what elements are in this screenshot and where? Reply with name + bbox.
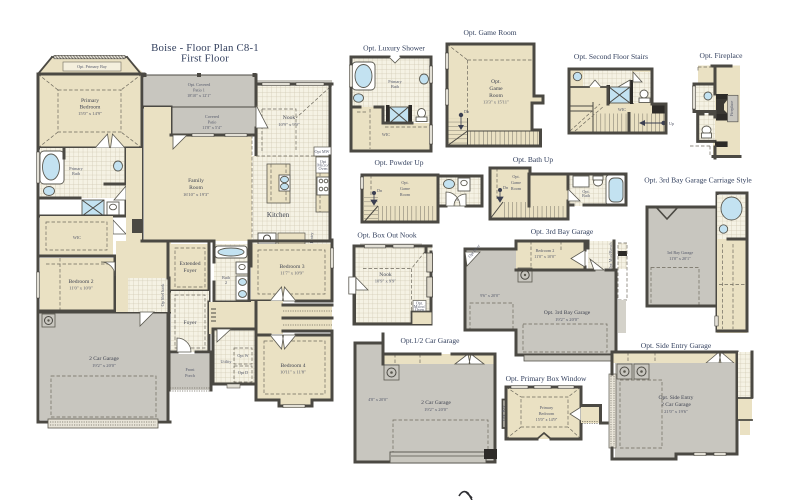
svg-text:Opt.: Opt. [512, 174, 519, 179]
svg-text:Room: Room [489, 93, 503, 99]
svg-text:Bath: Bath [72, 171, 81, 176]
svg-text:Opt. Primary Bay: Opt. Primary Bay [77, 64, 108, 69]
svg-text:Bath: Bath [391, 84, 400, 89]
svg-text:Bedroom 2: Bedroom 2 [68, 279, 93, 285]
svg-text:Up: Up [669, 121, 674, 126]
svg-text:Opt. Fireplace: Opt. Fireplace [700, 51, 744, 60]
svg-text:WIC: WIC [382, 132, 390, 137]
svg-text:Dn: Dn [377, 188, 383, 193]
svg-text:Bath: Bath [582, 193, 591, 198]
svg-text:Opt. Primary Box Window: Opt. Primary Box Window [506, 374, 587, 383]
svg-text:Bedroom 2: Bedroom 2 [536, 248, 555, 253]
svg-text:3rd Bay Garage: 3rd Bay Garage [667, 250, 694, 255]
svg-text:Bedroom: Bedroom [80, 105, 101, 111]
svg-text:Patio: Patio [208, 120, 217, 125]
svg-text:Covered: Covered [205, 114, 220, 119]
svg-text:Bedroom: Bedroom [539, 411, 555, 416]
svg-text:First Floor: First Floor [181, 53, 229, 65]
svg-text:Extended: Extended [179, 261, 200, 267]
svg-text:2 Car Garage: 2 Car Garage [661, 402, 691, 408]
svg-text:18'10" x 12'1": 18'10" x 12'1" [187, 93, 211, 98]
svg-text:Dn: Dn [503, 185, 509, 190]
svg-text:Opt. Powder Up: Opt. Powder Up [375, 158, 424, 167]
svg-text:Room: Room [511, 186, 522, 191]
svg-text:Opt W: Opt W [237, 353, 248, 358]
svg-text:13'3" x 15'11": 13'3" x 15'11" [483, 100, 509, 105]
svg-text:11'8" x 5'4": 11'8" x 5'4" [202, 125, 222, 130]
svg-text:Front: Front [185, 367, 195, 372]
svg-text:Bedroom 3: Bedroom 3 [279, 264, 304, 270]
svg-text:Opt. Game Room: Opt. Game Room [463, 28, 516, 37]
svg-text:9'6" x 20'0": 9'6" x 20'0" [480, 293, 500, 298]
svg-text:11'0" x 20'1": 11'0" x 20'1" [669, 256, 691, 261]
svg-text:Foyer: Foyer [183, 320, 196, 326]
svg-text:Fireplace: Fireplace [729, 101, 734, 117]
svg-text:Opt. 3rd Bay Garage Carriage S: Opt. 3rd Bay Garage Carriage Style [644, 176, 752, 185]
svg-text:16'10" x 19'3": 16'10" x 19'3" [183, 192, 209, 197]
svg-text:Room: Room [400, 192, 411, 197]
svg-text:15'0" x 14'9": 15'0" x 14'9" [536, 417, 558, 422]
svg-text:Nook: Nook [379, 272, 392, 278]
svg-text:Opt. Covered: Opt. Covered [188, 82, 211, 87]
svg-text:11'0" x 10'0": 11'0" x 10'0" [534, 254, 556, 259]
svg-text:Patio 1: Patio 1 [193, 88, 205, 93]
svg-text:WIC: WIC [618, 107, 626, 112]
svg-text:Nook: Nook [283, 115, 296, 121]
svg-text:Op Shel bank: Op Shel bank [160, 283, 165, 307]
svg-text:WIC: WIC [73, 235, 81, 240]
svg-text:2 Car Garage: 2 Car Garage [421, 400, 451, 406]
svg-text:Opt. Second Floor Stairs: Opt. Second Floor Stairs [574, 52, 648, 61]
svg-text:Foyer: Foyer [183, 268, 196, 274]
svg-text:Opt MW: Opt MW [314, 149, 329, 154]
svg-text:19'2" x 20'0": 19'2" x 20'0" [555, 317, 579, 322]
svg-text:4'8" x 20'0": 4'8" x 20'0" [368, 397, 388, 402]
svg-text:Game: Game [511, 180, 521, 185]
svg-text:11'7" x 10'9": 11'7" x 10'9" [280, 271, 304, 276]
svg-text:10'9" x 9'9": 10'9" x 9'9" [278, 122, 300, 127]
svg-text:2: 2 [225, 280, 227, 285]
svg-text:Opt. Bath Up: Opt. Bath Up [513, 155, 553, 164]
svg-text:Opt.: Opt. [491, 79, 501, 85]
svg-text:Opt. 3rd Bay Garage: Opt. 3rd Bay Garage [531, 227, 594, 236]
svg-text:Opt. Side Entry: Opt. Side Entry [659, 395, 694, 401]
svg-text:Primary: Primary [540, 405, 554, 410]
svg-text:Primary: Primary [81, 98, 99, 104]
svg-text:Opt. Box Out Nook: Opt. Box Out Nook [357, 231, 416, 240]
svg-text:Opt. Side Entry Garage: Opt. Side Entry Garage [641, 341, 712, 350]
svg-text:Utility: Utility [221, 359, 233, 364]
svg-text:Opt D: Opt D [238, 370, 248, 375]
svg-text:Room: Room [189, 185, 203, 191]
svg-text:Oven: Oven [415, 307, 425, 312]
svg-text:Opt.1/2 Car Garage: Opt.1/2 Car Garage [401, 336, 461, 345]
svg-text:Game: Game [489, 86, 503, 92]
svg-text:10'9" x 9'9": 10'9" x 9'9" [375, 279, 397, 284]
svg-text:19'2" x 20'0": 19'2" x 20'0" [92, 363, 116, 368]
svg-text:Bedroom 4: Bedroom 4 [280, 363, 305, 369]
svg-text:15'0" x 14'9": 15'0" x 14'9" [78, 111, 102, 116]
svg-text:Dn: Dn [464, 109, 470, 114]
svg-text:2 Car Garage: 2 Car Garage [89, 356, 119, 362]
svg-text:10'11" x 11'8": 10'11" x 11'8" [280, 370, 306, 375]
svg-text:Kitchen: Kitchen [267, 211, 290, 219]
svg-text:Opt. 3rd Bay Garage: Opt. 3rd Bay Garage [544, 310, 591, 316]
svg-text:Family: Family [188, 178, 204, 184]
svg-text:11'0" x 10'0": 11'0" x 10'0" [69, 286, 93, 291]
svg-text:Oven: Oven [318, 166, 328, 171]
svg-text:Porch: Porch [185, 373, 196, 378]
svg-text:19'2" x 20'0": 19'2" x 20'0" [424, 407, 448, 412]
svg-text:Opt.: Opt. [401, 180, 408, 185]
svg-text:Opt. Luxury Shower: Opt. Luxury Shower [363, 44, 425, 53]
svg-text:21'0" x 19'6": 21'0" x 19'6" [664, 409, 688, 414]
svg-text:Opt Mud/Bench: Opt Mud/Bench [608, 242, 613, 270]
svg-text:Game: Game [400, 186, 410, 191]
